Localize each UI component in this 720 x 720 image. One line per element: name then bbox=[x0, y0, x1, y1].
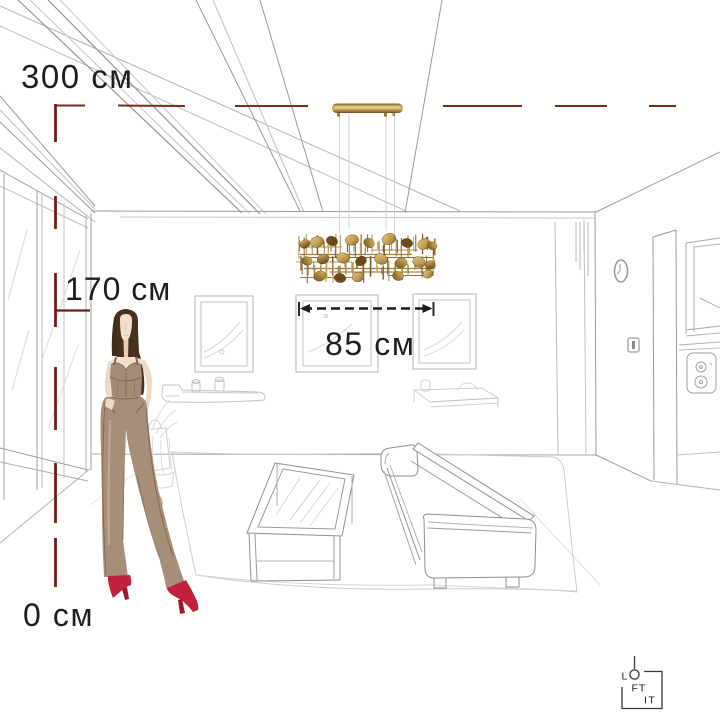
svg-text:170 см: 170 см bbox=[65, 271, 171, 307]
svg-text:FT: FT bbox=[632, 683, 647, 695]
svg-text:L: L bbox=[622, 671, 628, 683]
svg-text:0 см: 0 см bbox=[23, 597, 94, 633]
svg-text:300 см: 300 см bbox=[21, 58, 133, 95]
svg-text:IT: IT bbox=[644, 695, 656, 707]
svg-text:85 см: 85 см bbox=[325, 326, 415, 362]
